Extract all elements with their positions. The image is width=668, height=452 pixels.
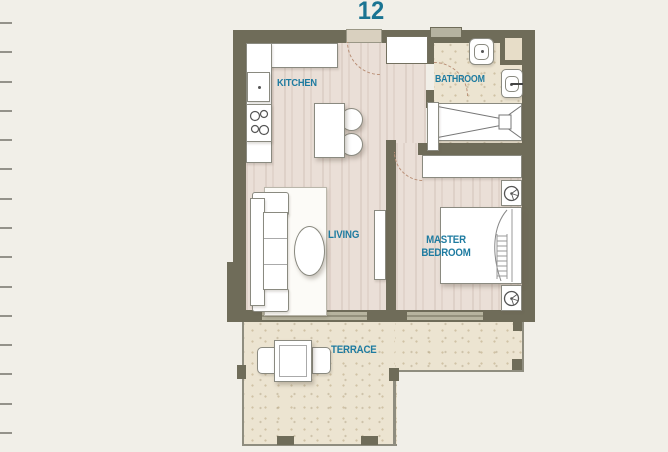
terrace-table-top: [279, 345, 307, 377]
entry-door: [346, 29, 382, 43]
terrace-table: [274, 340, 312, 382]
vent-inset: [430, 27, 462, 38]
railing-post: [277, 436, 294, 445]
floor-plan-page: 12: [0, 0, 668, 452]
lamp-icon: [503, 185, 520, 202]
sofa-seat: [263, 212, 288, 290]
wall-living-bedroom: [386, 140, 396, 310]
toilet: [469, 38, 494, 65]
shower-panel: [427, 102, 439, 151]
lamp-icon: [503, 290, 520, 307]
cooktop: [246, 104, 272, 142]
railing-post: [237, 365, 246, 379]
nightstand: [501, 180, 522, 206]
window-band: [407, 311, 483, 321]
living-label: LIVING: [328, 229, 359, 241]
fridge-handle-icon: [258, 86, 261, 89]
bathroom-label: BATHROOM: [435, 74, 485, 85]
terrace-chair: [312, 347, 331, 374]
terrace-label: TERRACE: [331, 344, 377, 356]
coffee-table: [294, 226, 325, 276]
dining-table: [314, 103, 345, 158]
fridge: [247, 72, 270, 102]
shower: [434, 103, 522, 141]
sofa-cushion-divider: [264, 264, 287, 265]
railing-post: [361, 436, 378, 445]
sink-faucet-line: [511, 83, 523, 85]
cooktop-burners-icon: [247, 105, 271, 141]
nightstand: [501, 285, 522, 311]
toilet-flush-icon: [481, 50, 484, 53]
wall-corner-closet-bottom: [500, 60, 522, 65]
kitchen-counter-left: [246, 43, 272, 163]
tv-unit: [374, 210, 386, 280]
master-bedroom-label: MASTER BEDROOM: [414, 234, 477, 259]
wall-right: [522, 30, 535, 322]
terrace-floor-left: [242, 322, 397, 446]
sofa-cushion-divider: [264, 238, 287, 239]
terrace-floor-right: [395, 322, 524, 372]
wall-left-upper: [233, 30, 246, 263]
railing-post: [513, 322, 522, 331]
entry-closet: [386, 36, 428, 64]
wardrobe: [422, 155, 522, 178]
kitchen-label: KITCHEN: [277, 77, 317, 89]
railing-post: [512, 359, 522, 370]
railing-post: [389, 368, 399, 381]
corner-closet: [505, 38, 522, 60]
floor-plan: KITCHEN BATHROOM LIVING MASTER BEDROOM T…: [0, 0, 668, 452]
shower-drain-icon: [435, 104, 521, 140]
